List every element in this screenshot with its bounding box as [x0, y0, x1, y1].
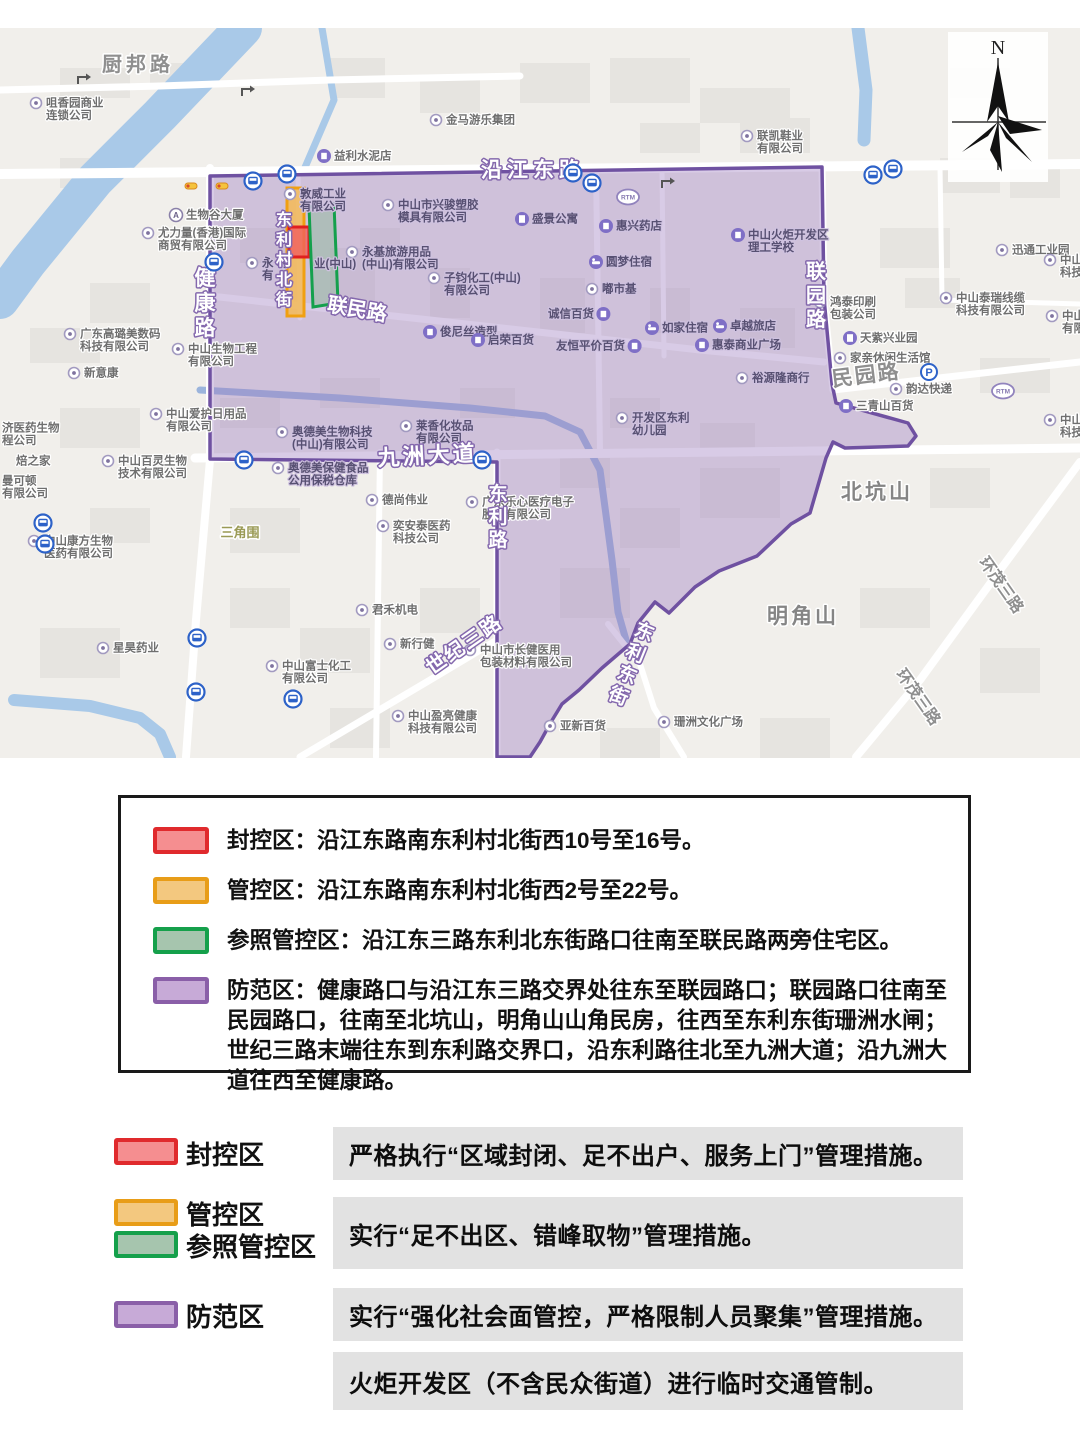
svg-text:诚信百货: 诚信百货	[548, 307, 594, 321]
svg-text:三青山百货: 三青山百货	[856, 399, 914, 413]
dot-icon	[737, 373, 748, 384]
shop-icon	[471, 333, 485, 347]
street-label: 东利路	[488, 482, 508, 551]
legend-row: 防范区：健康路口与沿江东三路交界处往东至联园路口；联园路口往南至民园路口，往南至…	[153, 976, 962, 1096]
legend-swatch-fengkong	[153, 827, 209, 854]
svg-text:鸿泰印刷包装公司: 鸿泰印刷包装公司	[829, 295, 876, 322]
river	[858, 28, 866, 140]
bus-icon	[279, 166, 296, 183]
poi-label: 启荣百货	[471, 333, 534, 348]
svg-text:中山有限: 中山有限	[1062, 309, 1080, 336]
dot-icon	[1045, 415, 1056, 426]
measure-zone-label: 管控区	[186, 1200, 264, 1230]
legend-row: 管控区：沿江东路南东利村北街西2号至22号。	[153, 876, 962, 906]
dot-icon	[273, 463, 284, 474]
svg-text:金马游乐集团: 金马游乐集团	[445, 113, 515, 127]
bus-icon	[188, 684, 205, 701]
svg-text:卓越旅店: 卓越旅店	[730, 319, 776, 333]
svg-text:A: A	[173, 211, 179, 220]
svg-text:中山科技: 中山科技	[1060, 413, 1080, 440]
dot-icon	[1047, 311, 1058, 322]
dot-icon	[143, 228, 154, 239]
svg-text:天紫兴业园: 天紫兴业园	[860, 331, 918, 345]
bus-icon	[285, 691, 302, 708]
bus-icon	[565, 165, 582, 182]
dot-icon	[941, 293, 952, 304]
street-label: 健康路	[195, 266, 217, 340]
bus-icon	[189, 630, 206, 647]
svg-text:中山市兴骏塑胶模具有限公司: 中山市兴骏塑胶模具有限公司	[398, 198, 479, 225]
dot-icon	[467, 497, 478, 508]
rtm-icon: RTM	[992, 384, 1014, 399]
poi-label: 三青山百货	[839, 399, 914, 414]
measure-box: 火炬开发区（不含民众街道）进行临时交通管制。	[333, 1352, 963, 1410]
svg-text:RTM: RTM	[621, 195, 635, 202]
dot-icon	[103, 456, 114, 467]
building-block	[700, 88, 790, 123]
measure-zone-label: 参照管控区	[186, 1232, 316, 1262]
dot-icon	[357, 605, 368, 616]
legend-swatch-cankao	[153, 927, 209, 954]
bus-icon	[474, 452, 491, 469]
epidemic-zone-map: 咀香园商业连锁公司金马游乐集团益利水泥店联凯鞋业有限公司生物谷大厦A尤力量(香港…	[0, 28, 1080, 758]
legend-item-text: 防范区：健康路口与沿江东三路交界处往东至联园路口；联园路口往南至民园路口，往南至…	[227, 976, 962, 1096]
svg-text:生物谷大厦: 生物谷大厦	[186, 208, 244, 222]
building-block	[420, 78, 480, 113]
svg-text:嘟市基: 嘟市基	[602, 282, 637, 296]
poi-label: 益利水泥店	[317, 149, 392, 164]
poi-label: 盛景公寓	[515, 212, 578, 227]
svg-text:中山市长健医用包装材料有限公司: 中山市长健医用包装材料有限公司	[479, 643, 572, 670]
dot-icon	[659, 717, 670, 728]
measure-text: 严格执行“区域封闭、足不出户、服务上门”管理措施。	[333, 1136, 950, 1171]
svg-text:中山康方生物医药有限公司: 中山康方生物医药有限公司	[44, 534, 113, 561]
signal-icon	[216, 183, 228, 189]
bldg-icon	[515, 212, 529, 226]
bus-icon	[584, 175, 601, 192]
dot-icon	[173, 344, 184, 355]
svg-text:RTM: RTM	[996, 389, 1010, 396]
building-block	[860, 588, 930, 628]
dot-icon	[429, 273, 440, 284]
shop-icon	[596, 307, 610, 321]
svg-text:联凯鞋业有限公司: 联凯鞋业有限公司	[757, 129, 803, 156]
dot-icon	[383, 200, 394, 211]
building-block	[980, 648, 1040, 693]
bed-icon	[589, 255, 603, 269]
dot-icon	[151, 409, 162, 420]
dot-icon	[247, 258, 258, 269]
dot-icon	[285, 189, 296, 200]
shop-icon	[695, 338, 709, 352]
building-block	[520, 63, 590, 103]
poi-label: 新行健	[385, 637, 435, 651]
street-label: 东利村北街	[275, 210, 292, 309]
bus-icon	[245, 173, 262, 190]
measure-swatch-cankao	[114, 1231, 178, 1258]
svg-text:如家住宿: 如家住宿	[662, 321, 708, 335]
signal-icon	[185, 183, 197, 189]
dot-icon	[267, 661, 278, 672]
measure-box: 实行“足不出区、错峰取物”管理措施。	[333, 1197, 963, 1269]
building-block	[905, 278, 960, 308]
svg-text:圆梦住宿: 圆梦住宿	[606, 255, 652, 269]
shop-icon	[599, 219, 613, 233]
svg-text:业(中山): 业(中山)	[314, 257, 356, 271]
shop-icon	[423, 325, 437, 339]
street-label: 三角围	[220, 525, 259, 540]
svg-text:焙之家: 焙之家	[16, 454, 51, 468]
svg-text:中山泰瑞线缆科技有限公司: 中山泰瑞线缆科技有限公司	[956, 291, 1025, 318]
shop-icon	[628, 339, 642, 353]
street-label: 北坑山	[841, 480, 913, 504]
legend-row: 参照管控区：沿江东三路东利北东街路口往南至联民路两旁住宅区。	[153, 926, 962, 956]
dot-icon	[401, 421, 412, 432]
measure-swatch-fengkong	[114, 1138, 178, 1165]
svg-text:中山盈亮健康科技有限公司: 中山盈亮健康科技有限公司	[408, 709, 477, 736]
bed-icon	[713, 319, 727, 333]
dot-icon	[98, 643, 109, 654]
bus-icon	[35, 515, 52, 532]
building-block	[930, 468, 990, 508]
svg-text:奥德美生物科技(中山)有限公司: 奥德美生物科技(中山)有限公司	[291, 425, 373, 452]
bus-icon	[236, 452, 253, 469]
legend-item-text: 参照管控区：沿江东三路东利北东街路口往南至联民路两旁住宅区。	[227, 926, 962, 956]
building-block	[610, 58, 690, 103]
svg-text:启荣百货: 启荣百货	[488, 333, 534, 347]
legend-item-text: 封控区：沿江东路南东利村北街西10号至16号。	[227, 826, 962, 856]
poi-label: 惠兴药店	[599, 219, 662, 234]
svg-text:惠兴药店: 惠兴药店	[616, 219, 662, 233]
dot-icon	[835, 353, 846, 364]
compass: N	[948, 32, 1048, 182]
bed-icon	[645, 321, 659, 335]
dot-icon	[431, 115, 442, 126]
dot-icon	[997, 245, 1008, 256]
svg-text:益利水泥店: 益利水泥店	[334, 149, 392, 163]
svg-text:盛景公寓: 盛景公寓	[532, 212, 578, 226]
poi-label: 诚信百货	[548, 307, 610, 322]
shop-icon	[839, 399, 853, 413]
park-icon: P	[921, 364, 937, 380]
svg-text:德尚伟业: 德尚伟业	[381, 493, 428, 507]
dot-icon	[69, 368, 80, 379]
street-label: 九洲大道	[376, 440, 478, 470]
dot-icon	[367, 495, 378, 506]
compass-n-label: N	[991, 37, 1005, 59]
dot-icon	[385, 639, 396, 650]
epidemic-zone-infographic: { "zone_colors": { "fengkong": {"label":…	[0, 0, 1080, 1447]
dot-icon	[347, 247, 358, 258]
bus-icon	[206, 254, 223, 271]
svg-text:惠泰商业广场: 惠泰商业广场	[712, 338, 781, 352]
poi-label: 如家住宿	[645, 321, 708, 336]
building-block	[60, 408, 140, 448]
dot-icon	[393, 711, 404, 722]
poi-label: 天紫兴业园	[843, 331, 918, 346]
cirA-icon: A	[170, 209, 183, 222]
svg-text:中山科技: 中山科技	[1060, 253, 1080, 280]
poi-label: 嘟市基	[587, 282, 637, 296]
svg-text:珊洲文化广场: 珊洲文化广场	[674, 715, 743, 729]
svg-text:星昊药业: 星昊药业	[113, 641, 159, 655]
dot-icon	[378, 521, 389, 532]
svg-text:中山百灵生物技术有限公司: 中山百灵生物技术有限公司	[118, 454, 187, 481]
dot-icon	[891, 384, 902, 395]
zone-reference	[309, 204, 338, 307]
dot-icon	[617, 413, 628, 424]
legend-swatch-fangfan	[153, 977, 209, 1004]
poi-label: 焙之家	[16, 454, 51, 468]
measure-zone-label: 封控区	[186, 1140, 264, 1170]
legend-box: 封控区：沿江东路南东利村北街西10号至16号。管控区：沿江东路南东利村北街西2号…	[118, 795, 971, 1073]
svg-text:新行健: 新行健	[400, 637, 435, 651]
poi-label: 新意康	[69, 366, 119, 380]
building-block	[230, 588, 290, 628]
svg-text:韵达快递: 韵达快递	[906, 382, 952, 396]
svg-text:亚新百货: 亚新百货	[560, 719, 606, 733]
building-block	[640, 123, 700, 153]
poi-label: 圆梦住宿	[589, 255, 652, 270]
dot-icon	[277, 427, 288, 438]
svg-text:永基旅游用品(中山)有限公司: 永基旅游用品(中山)有限公司	[361, 245, 439, 272]
building-block	[90, 283, 150, 323]
shop-icon	[731, 228, 745, 242]
svg-text:敦威工业有限公司: 敦威工业有限公司	[300, 187, 346, 214]
measure-text: 实行“足不出区、错峰取物”管理措施。	[333, 1216, 778, 1251]
svg-text:广东高璐美数码科技有限公司: 广东高璐美数码科技有限公司	[80, 327, 161, 354]
svg-text:奥德美保健食品公用保税仓库: 奥德美保健食品公用保税仓库	[287, 461, 369, 488]
dot-icon	[545, 721, 556, 732]
bus-icon	[885, 161, 902, 178]
legend-swatch-guankong	[153, 877, 209, 904]
street-label: 联园路	[806, 260, 827, 331]
measure-box: 实行“强化社会面管控，严格限制人员聚集”管理措施。	[333, 1288, 963, 1341]
svg-text:新意康: 新意康	[84, 366, 119, 380]
dot-icon	[1045, 255, 1056, 266]
street-label: 明角山	[767, 604, 839, 628]
building-block	[760, 718, 830, 758]
building-block	[40, 628, 120, 678]
measure-text: 实行“强化社会面管控，严格限制人员聚集”管理措施。	[333, 1297, 950, 1332]
measure-zone-label: 防范区	[186, 1302, 264, 1332]
bus-icon	[37, 536, 54, 553]
bus-icon	[865, 167, 882, 184]
poi-label: 业(中山)	[314, 257, 356, 271]
poi-label: 俊尼丝造型	[423, 325, 498, 340]
svg-text:友恒平价百货: 友恒平价百货	[556, 339, 625, 353]
measure-box: 严格执行“区域封闭、足不出户、服务上门”管理措施。	[333, 1127, 963, 1180]
svg-text:君禾机电: 君禾机电	[372, 603, 418, 617]
dot-icon	[65, 329, 76, 340]
building-block	[330, 708, 390, 748]
poi-label: 生物谷大厦A	[170, 208, 244, 222]
street-label: 厨邦路	[102, 52, 174, 76]
legend-item-text: 管控区：沿江东路南东利村北街西2号至22号。	[227, 876, 962, 906]
shop-icon	[317, 149, 331, 163]
dot-icon	[31, 98, 42, 109]
dot-icon	[587, 284, 598, 295]
measure-swatch-guankong	[114, 1199, 178, 1226]
legend-row: 封控区：沿江东路南东利村北街西10号至16号。	[153, 826, 962, 856]
dot-icon	[742, 131, 753, 142]
bldg-icon	[843, 331, 857, 345]
svg-text:P: P	[925, 367, 932, 379]
measure-text: 火炬开发区（不含民众街道）进行临时交通管制。	[333, 1364, 900, 1399]
building-block	[600, 728, 660, 758]
poi-label: 卓越旅店	[713, 319, 776, 334]
measure-swatch-fangfan	[114, 1301, 178, 1328]
svg-text:裕源隆商行: 裕源隆商行	[751, 371, 810, 385]
rtm-icon: RTM	[617, 190, 639, 205]
